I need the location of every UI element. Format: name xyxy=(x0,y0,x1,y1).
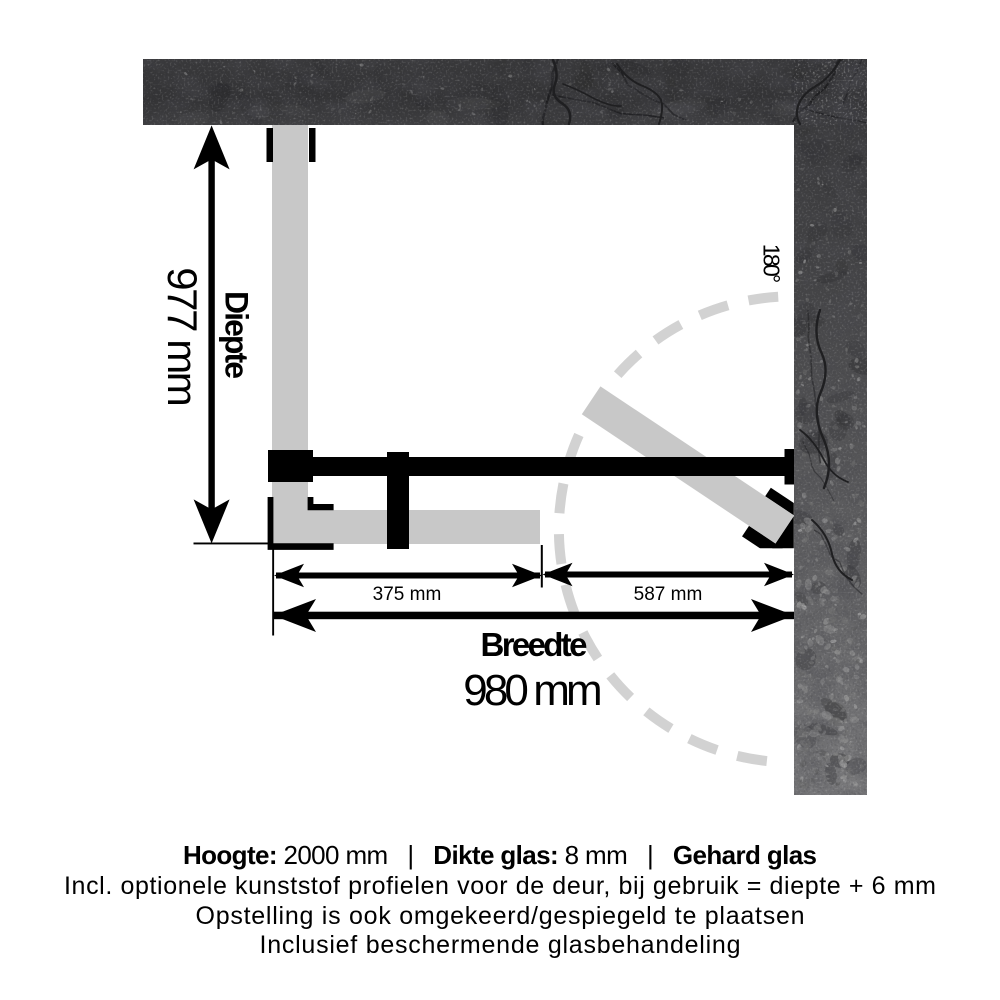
svg-text:Diepte: Diepte xyxy=(219,291,255,379)
svg-text:587 mm: 587 mm xyxy=(634,584,703,605)
svg-text:Hoogte: 2000 mm | Dikte gl: Hoogte: 2000 mm | Dikte glas: 8 mm | Geh… xyxy=(183,840,817,870)
svg-text:375 mm: 375 mm xyxy=(373,584,442,605)
svg-text:980 mm: 980 mm xyxy=(463,666,602,715)
svg-text:Incl. optionele kunststof prof: Incl. optionele kunststof profielen voor… xyxy=(64,872,936,900)
svg-text:Inclusief beschermende glasbeh: Inclusief beschermende glasbehandeling xyxy=(260,931,741,959)
svg-text:Opstelling is ook omgekeerd/ge: Opstelling is ook omgekeerd/gespiegeld t… xyxy=(196,902,805,930)
svg-text:Breedte: Breedte xyxy=(481,626,588,663)
svg-text:180°: 180° xyxy=(759,244,785,284)
svg-text:977 mm: 977 mm xyxy=(159,267,206,407)
